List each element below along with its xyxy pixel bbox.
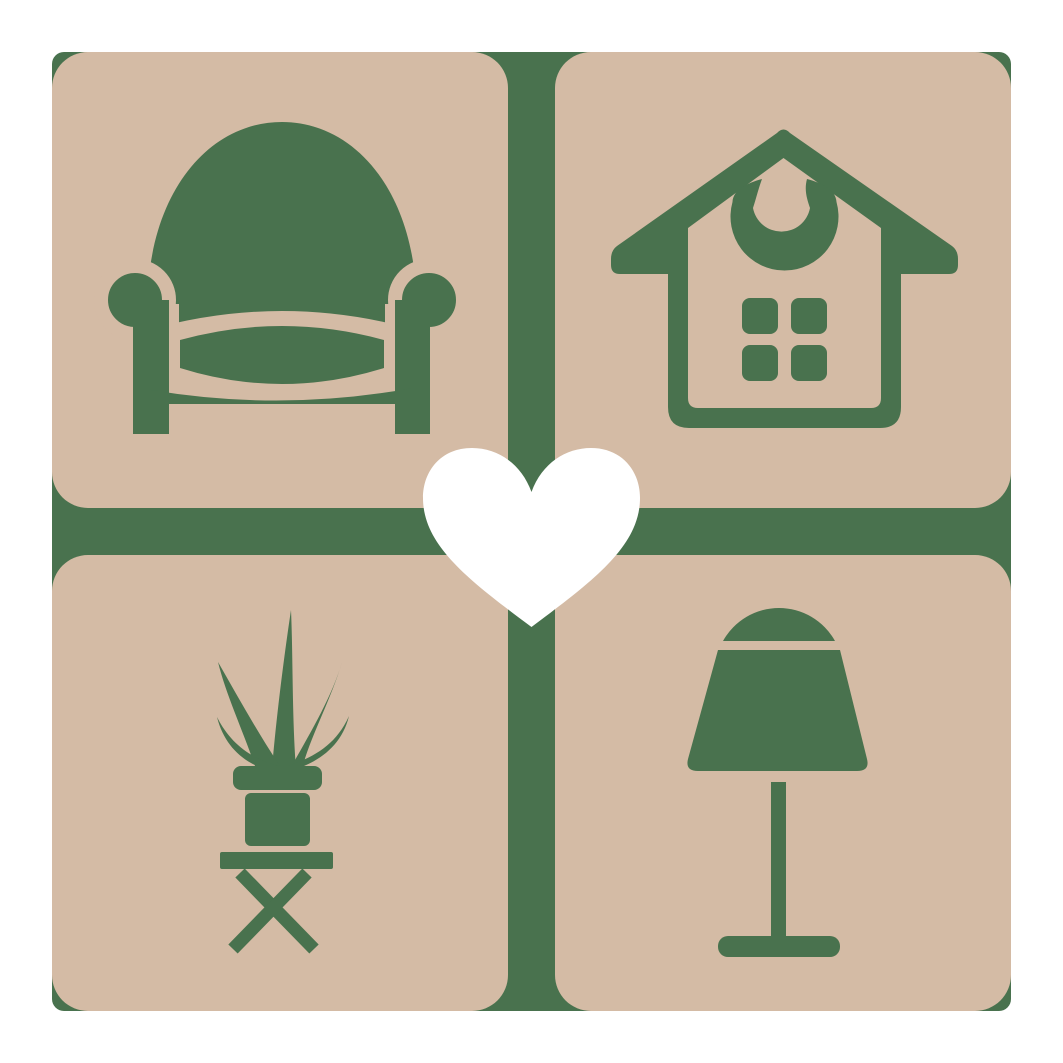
lamp-stem xyxy=(771,782,786,942)
stool-seat xyxy=(220,852,333,869)
logo-canvas xyxy=(0,0,1063,1063)
tile-top-right xyxy=(555,52,1011,508)
house-window-pane xyxy=(791,345,827,381)
house-window-pane xyxy=(742,345,778,381)
armchair-leg-right xyxy=(395,300,430,434)
house-window-pane xyxy=(742,298,778,334)
tile-bottom-left xyxy=(52,555,508,1011)
armchair-leg-left xyxy=(133,300,169,434)
armchair-seat-cushion xyxy=(180,326,384,384)
logo xyxy=(0,0,1063,1063)
tile-bottom-right xyxy=(555,555,1011,1011)
lamp-shade xyxy=(687,650,867,771)
house-window-pane xyxy=(791,298,827,334)
tile-top-left xyxy=(52,52,508,508)
lamp-base xyxy=(718,936,840,957)
plant-pot-rim xyxy=(233,766,322,790)
tile-top-right-square xyxy=(555,52,1011,508)
plant-pot-body xyxy=(245,793,310,846)
